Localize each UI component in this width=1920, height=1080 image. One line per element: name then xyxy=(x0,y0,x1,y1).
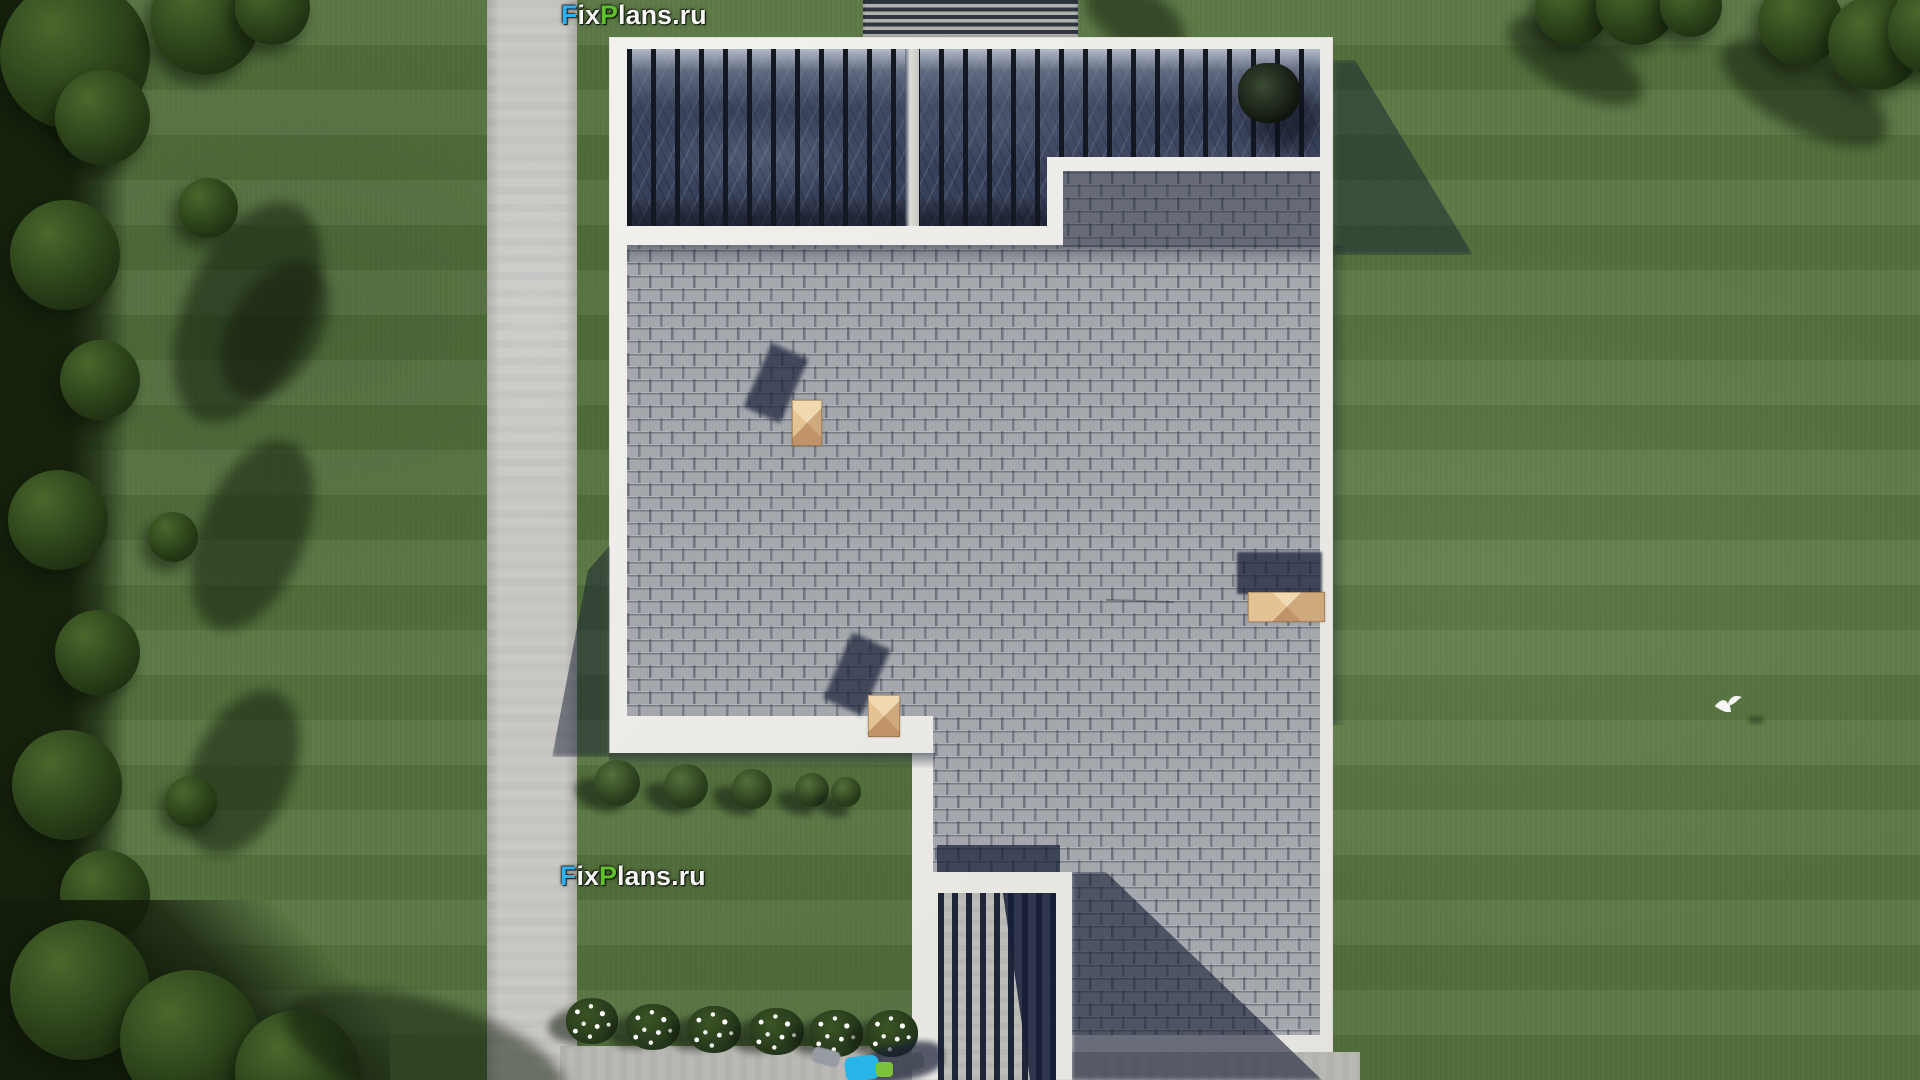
roof-shadow-right-block xyxy=(1063,171,1320,247)
tree-canopy xyxy=(55,610,140,695)
toy-cyan xyxy=(844,1054,880,1080)
chimney-wide xyxy=(1248,592,1325,622)
tree-canopy xyxy=(178,178,238,238)
bush xyxy=(664,764,708,808)
bush xyxy=(594,760,640,806)
chimney xyxy=(868,695,900,737)
aerial-house-render: FixPlans.ru FixPlans.ru xyxy=(0,0,1920,1080)
roof-shadow-under-pergola xyxy=(627,245,1320,267)
tree-canopy xyxy=(12,730,122,840)
pergola-beam xyxy=(905,49,919,226)
right-wall-shadow xyxy=(1333,245,1347,725)
bird-shadow xyxy=(1748,716,1764,724)
potted-plant xyxy=(1238,63,1300,123)
shaft-shadow xyxy=(938,893,1056,1080)
tree-canopy xyxy=(8,470,108,570)
bush xyxy=(831,777,861,807)
bush xyxy=(732,769,772,809)
stair-shaft xyxy=(938,893,1056,1080)
watermark-top: FixPlans.ru xyxy=(561,1,707,29)
house-band-shadow xyxy=(609,753,935,769)
tree-canopy xyxy=(10,200,120,310)
garden-path xyxy=(487,0,577,1080)
tree-canopy xyxy=(148,512,198,562)
chimney xyxy=(792,400,822,446)
tree-canopy xyxy=(60,340,140,420)
toy-green xyxy=(876,1062,893,1077)
shaft-top-shadow xyxy=(937,845,1060,872)
tree-canopy xyxy=(165,776,217,828)
watermark-bottom: FixPlans.ru xyxy=(560,862,706,890)
tree-canopy xyxy=(55,70,150,165)
flying-bird-icon xyxy=(1710,688,1748,720)
entrance-steps xyxy=(863,0,1078,37)
chimney-shadow xyxy=(1237,552,1322,594)
